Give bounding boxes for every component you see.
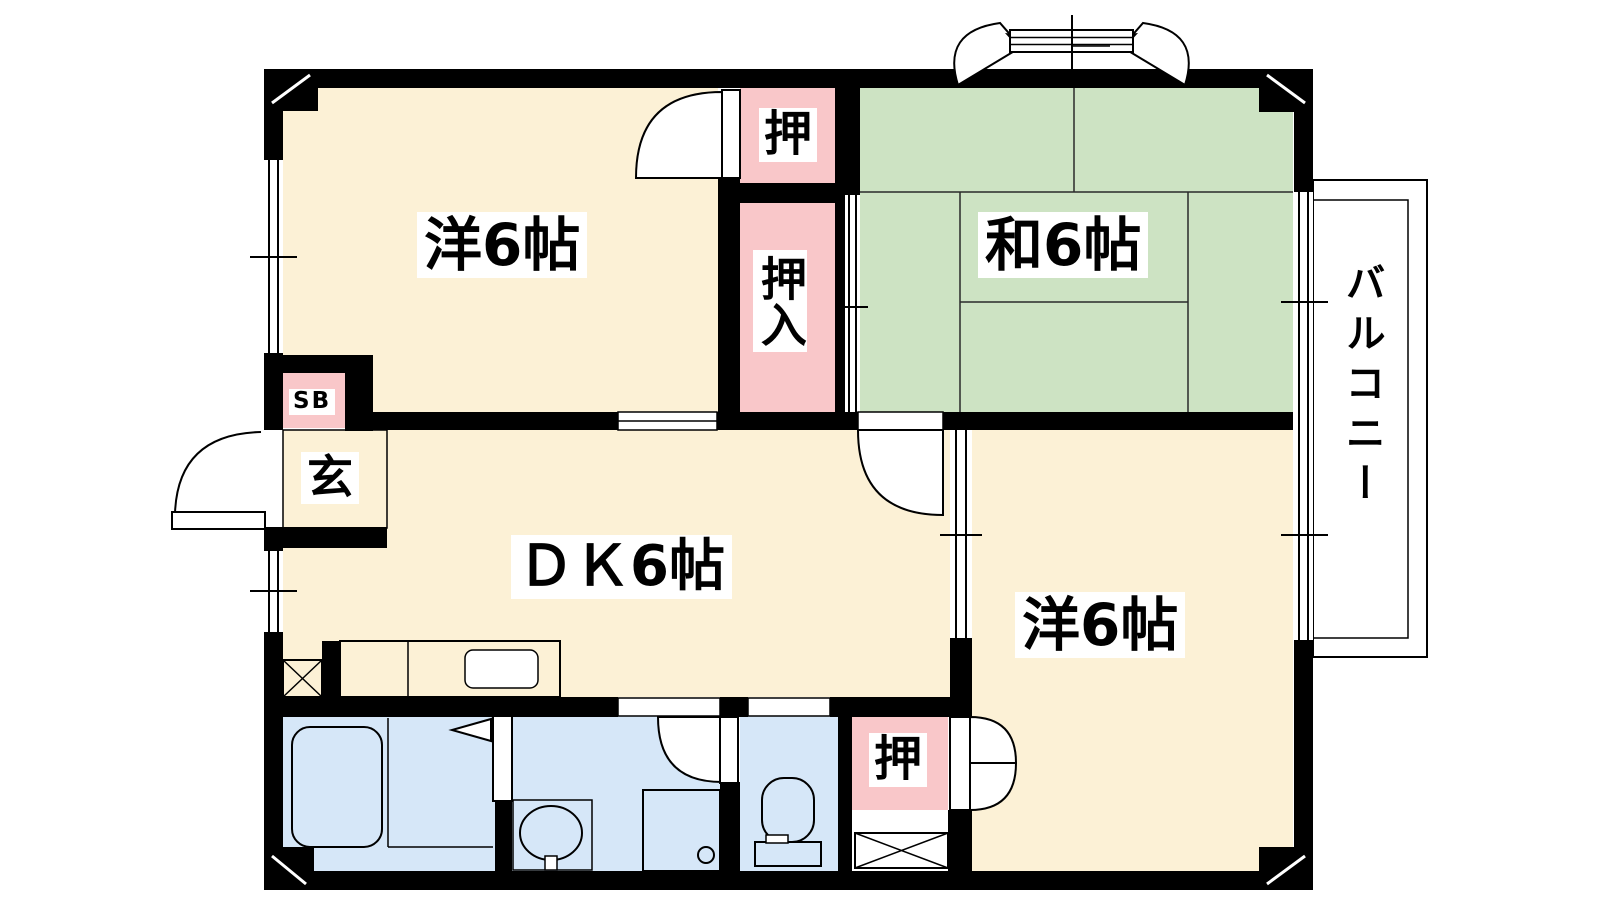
label-japanese-room: 和6帖 xyxy=(978,212,1148,278)
label-western-room-top: 洋6帖 xyxy=(417,212,587,278)
label-oshiire: 押入 xyxy=(753,250,807,352)
pipe-space xyxy=(855,833,948,868)
label-entrance: 玄 xyxy=(301,452,359,504)
label-shoe-box: SB xyxy=(289,389,335,415)
toilet-door-opening xyxy=(748,698,830,716)
japanese-room-door-opening xyxy=(858,412,943,430)
label-closet-bottom: 押 xyxy=(869,733,927,787)
label-balcony: バルコニー xyxy=(1336,256,1386,518)
label-western-room-bottom: 洋6帖 xyxy=(1015,592,1185,658)
closet-bifold-door xyxy=(950,717,1016,810)
floor-plan: 洋6帖 和6帖 ＤＫ6帖 洋6帖 押 押入 押 玄 SB バルコニー xyxy=(0,0,1600,900)
entrance-door xyxy=(172,432,265,529)
sliding-door-western-top-to-dk xyxy=(618,412,717,430)
label-dining-kitchen: ＤＫ6帖 xyxy=(511,535,732,599)
floors xyxy=(283,88,1293,871)
label-closet-top: 押 xyxy=(759,108,817,162)
kitchen-sink xyxy=(465,650,538,688)
washroom-door-opening xyxy=(618,698,720,716)
